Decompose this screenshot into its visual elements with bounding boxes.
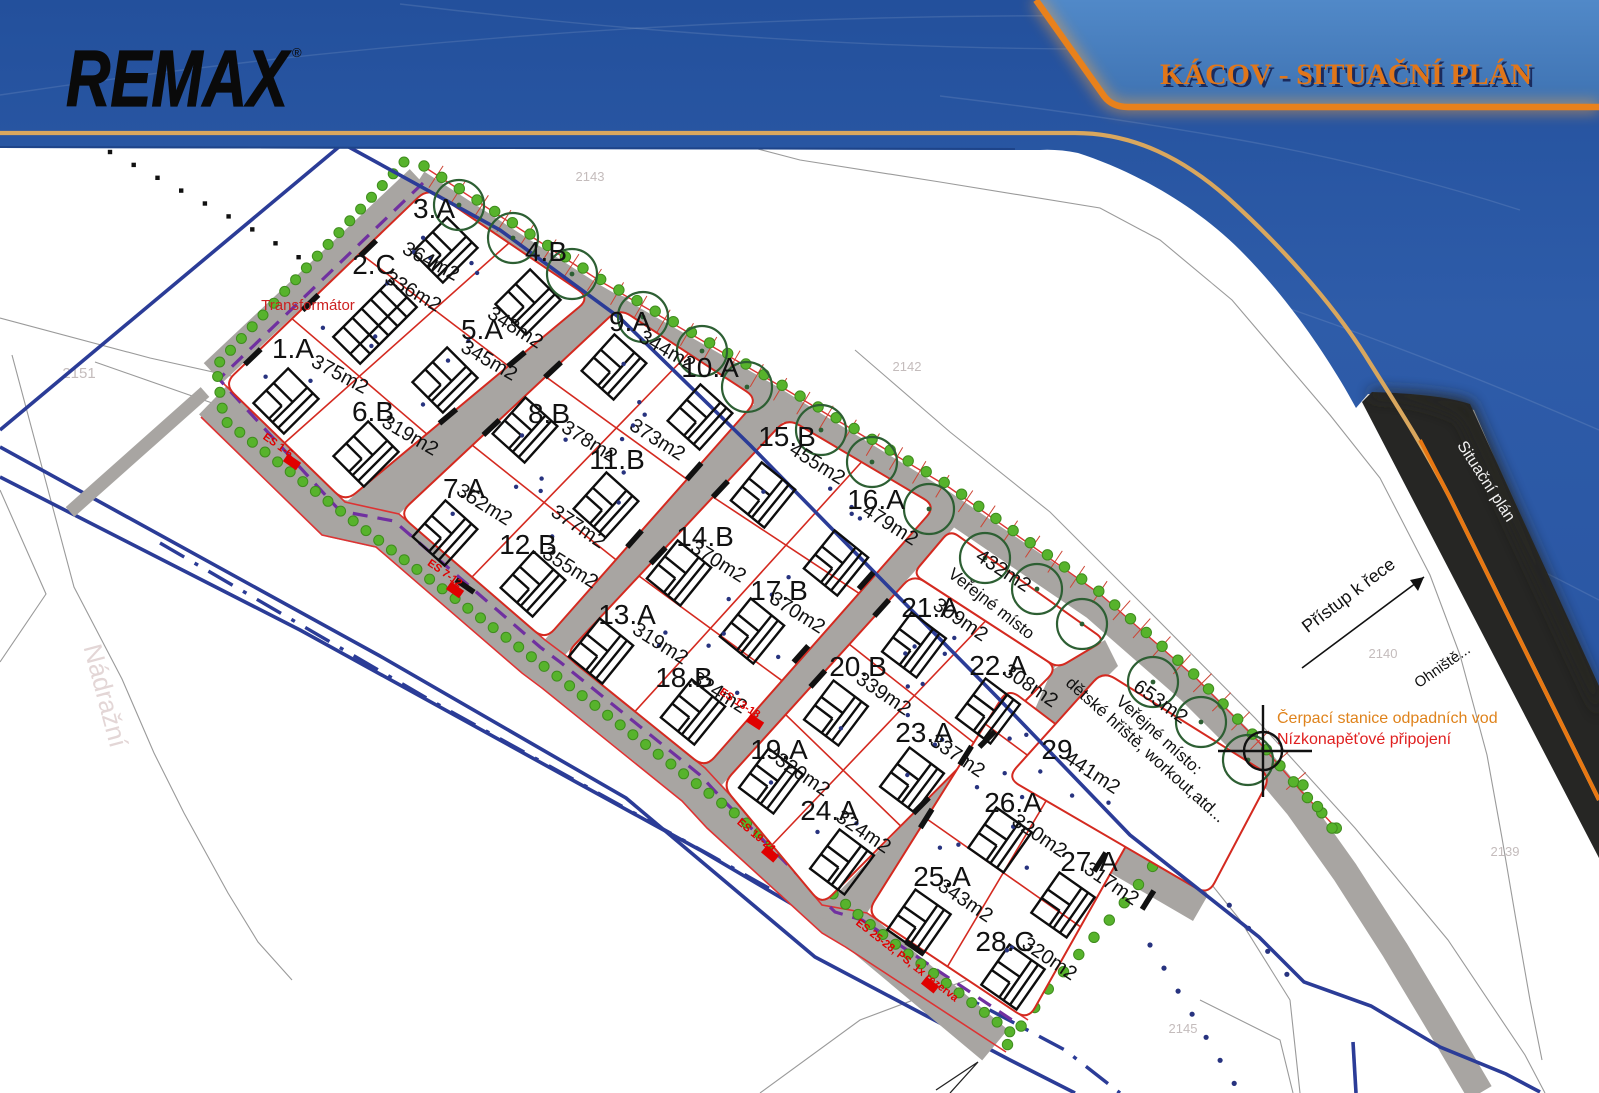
svg-text:Čerpací stanice odpadních vod: Čerpací stanice odpadních vod [1277,708,1498,727]
svg-text:REMAX: REMAX [66,34,292,123]
svg-text:®: ® [292,45,302,60]
svg-text:2139: 2139 [1491,844,1520,859]
svg-text:KÁCOV - SITUAČNÍ PLÁN: KÁCOV - SITUAČNÍ PLÁN [1160,58,1532,91]
svg-text:Transformátor: Transformátor [261,297,355,314]
svg-text:2145: 2145 [1169,1021,1198,1036]
svg-text:3.A: 3.A [413,193,455,224]
svg-text:26.A: 26.A [984,787,1042,818]
svg-text:2143: 2143 [576,169,605,184]
svg-text:4.B: 4.B [525,236,567,267]
svg-text:2142: 2142 [893,359,922,374]
svg-text:Nízkonapěťové připojení: Nízkonapěťové připojení [1277,731,1452,748]
svg-text:1.A: 1.A [272,333,314,364]
svg-text:2140: 2140 [1369,646,1398,661]
